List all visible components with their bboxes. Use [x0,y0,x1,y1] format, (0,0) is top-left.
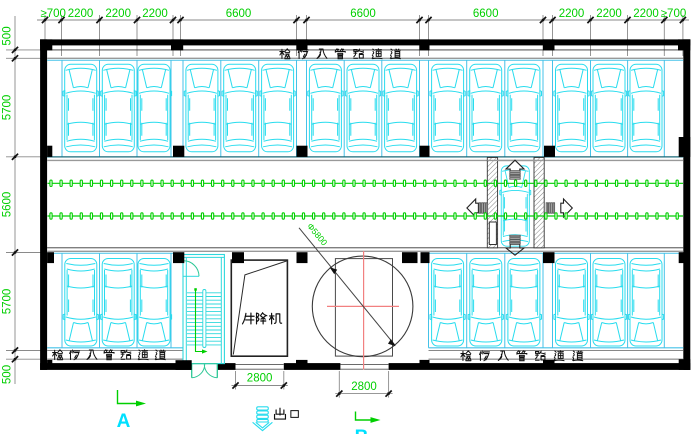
svg-text:≥700: ≥700 [661,8,687,20]
svg-text:2800: 2800 [247,373,273,385]
svg-text:5600: 5600 [2,192,14,218]
svg-text:2200: 2200 [559,8,585,20]
svg-text:2200: 2200 [105,8,131,20]
svg-text:2800: 2800 [351,381,377,393]
svg-text:2200: 2200 [142,8,168,20]
svg-text:A: A [117,411,131,432]
svg-text:B: B [355,427,369,434]
svg-text:≥700: ≥700 [40,8,66,20]
svg-text:2200: 2200 [68,8,94,20]
svg-text:2200: 2200 [633,8,659,20]
svg-text:2200: 2200 [596,8,622,20]
svg-text:6600: 6600 [473,8,499,20]
svg-text:500: 500 [2,26,14,45]
svg-text:5700: 5700 [2,95,14,121]
svg-text:Φ5800: Φ5800 [305,221,329,247]
svg-text:5700: 5700 [2,289,14,315]
svg-text:6600: 6600 [350,8,376,20]
svg-text:6600: 6600 [226,8,252,20]
svg-text:500: 500 [2,365,14,384]
